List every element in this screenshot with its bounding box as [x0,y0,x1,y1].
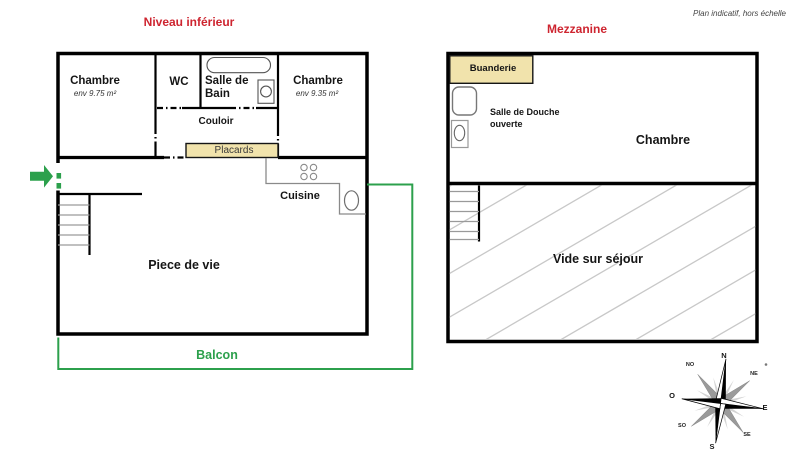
shower-sink-icon [452,121,469,148]
compass-dot [765,363,768,366]
floorplan-drawing [0,0,800,460]
mezzanine-walls [448,54,757,342]
compass-label-southwest: SO [678,424,686,430]
compass-label-south: S [709,443,714,451]
room-area-chambre-1: env 9.75 m² [74,90,116,98]
stairs-mezzanine-icon [450,186,480,242]
room-label-couloir: Couloir [199,117,234,127]
room-label-chambre-2: Chambre [293,76,343,88]
room-label-douche-line1: Salle de Douche [490,108,560,117]
compass-label-north: N [721,352,726,360]
balcony-outline [58,185,412,370]
room-label-piece-de-vie: Piece de vie [148,259,220,272]
compass-label-northeast: NE [750,372,758,378]
floorplan-canvas: Niveau inférieur Mezzanine Plan indicati… [0,0,800,460]
lower-level-title: Niveau inférieur [144,16,235,28]
room-label-chambre-1: Chambre [70,76,120,88]
compass-label-east: E [762,404,767,412]
compass-label-west: O [669,392,675,400]
stove-burners-icon [301,164,317,179]
washing-machine-icon [453,87,477,115]
bath-sink-icon [258,80,274,103]
room-label-douche-line2: ouverte [490,120,523,129]
room-label-buanderie: Buanderie [470,64,516,74]
room-label-salle-de-bain-line1: Salle de [205,76,248,88]
room-label-salle-de-bain-line2: Bain [205,89,230,101]
room-label-cuisine: Cuisine [280,191,320,202]
stairs-lower-icon [58,194,142,255]
plan-disclaimer-note: Plan indicatif, hors échelle [693,10,786,18]
compass-label-northwest: NO [686,363,694,369]
bathtub-icon [207,58,271,73]
room-area-chambre-2: env 9.35 m² [296,90,338,98]
room-label-balcon: Balcon [196,349,238,362]
mezzanine-title: Mezzanine [547,23,607,35]
compass-label-southeast: SE [743,433,750,439]
room-label-placards: Placards [215,146,254,156]
room-label-vide-sur-sejour: Vide sur séjour [553,253,643,266]
void-hatching [175,183,800,346]
room-label-wc: WC [169,77,188,89]
kitchen-sink-icon [345,191,359,210]
room-label-chambre-mezzanine: Chambre [636,134,690,147]
